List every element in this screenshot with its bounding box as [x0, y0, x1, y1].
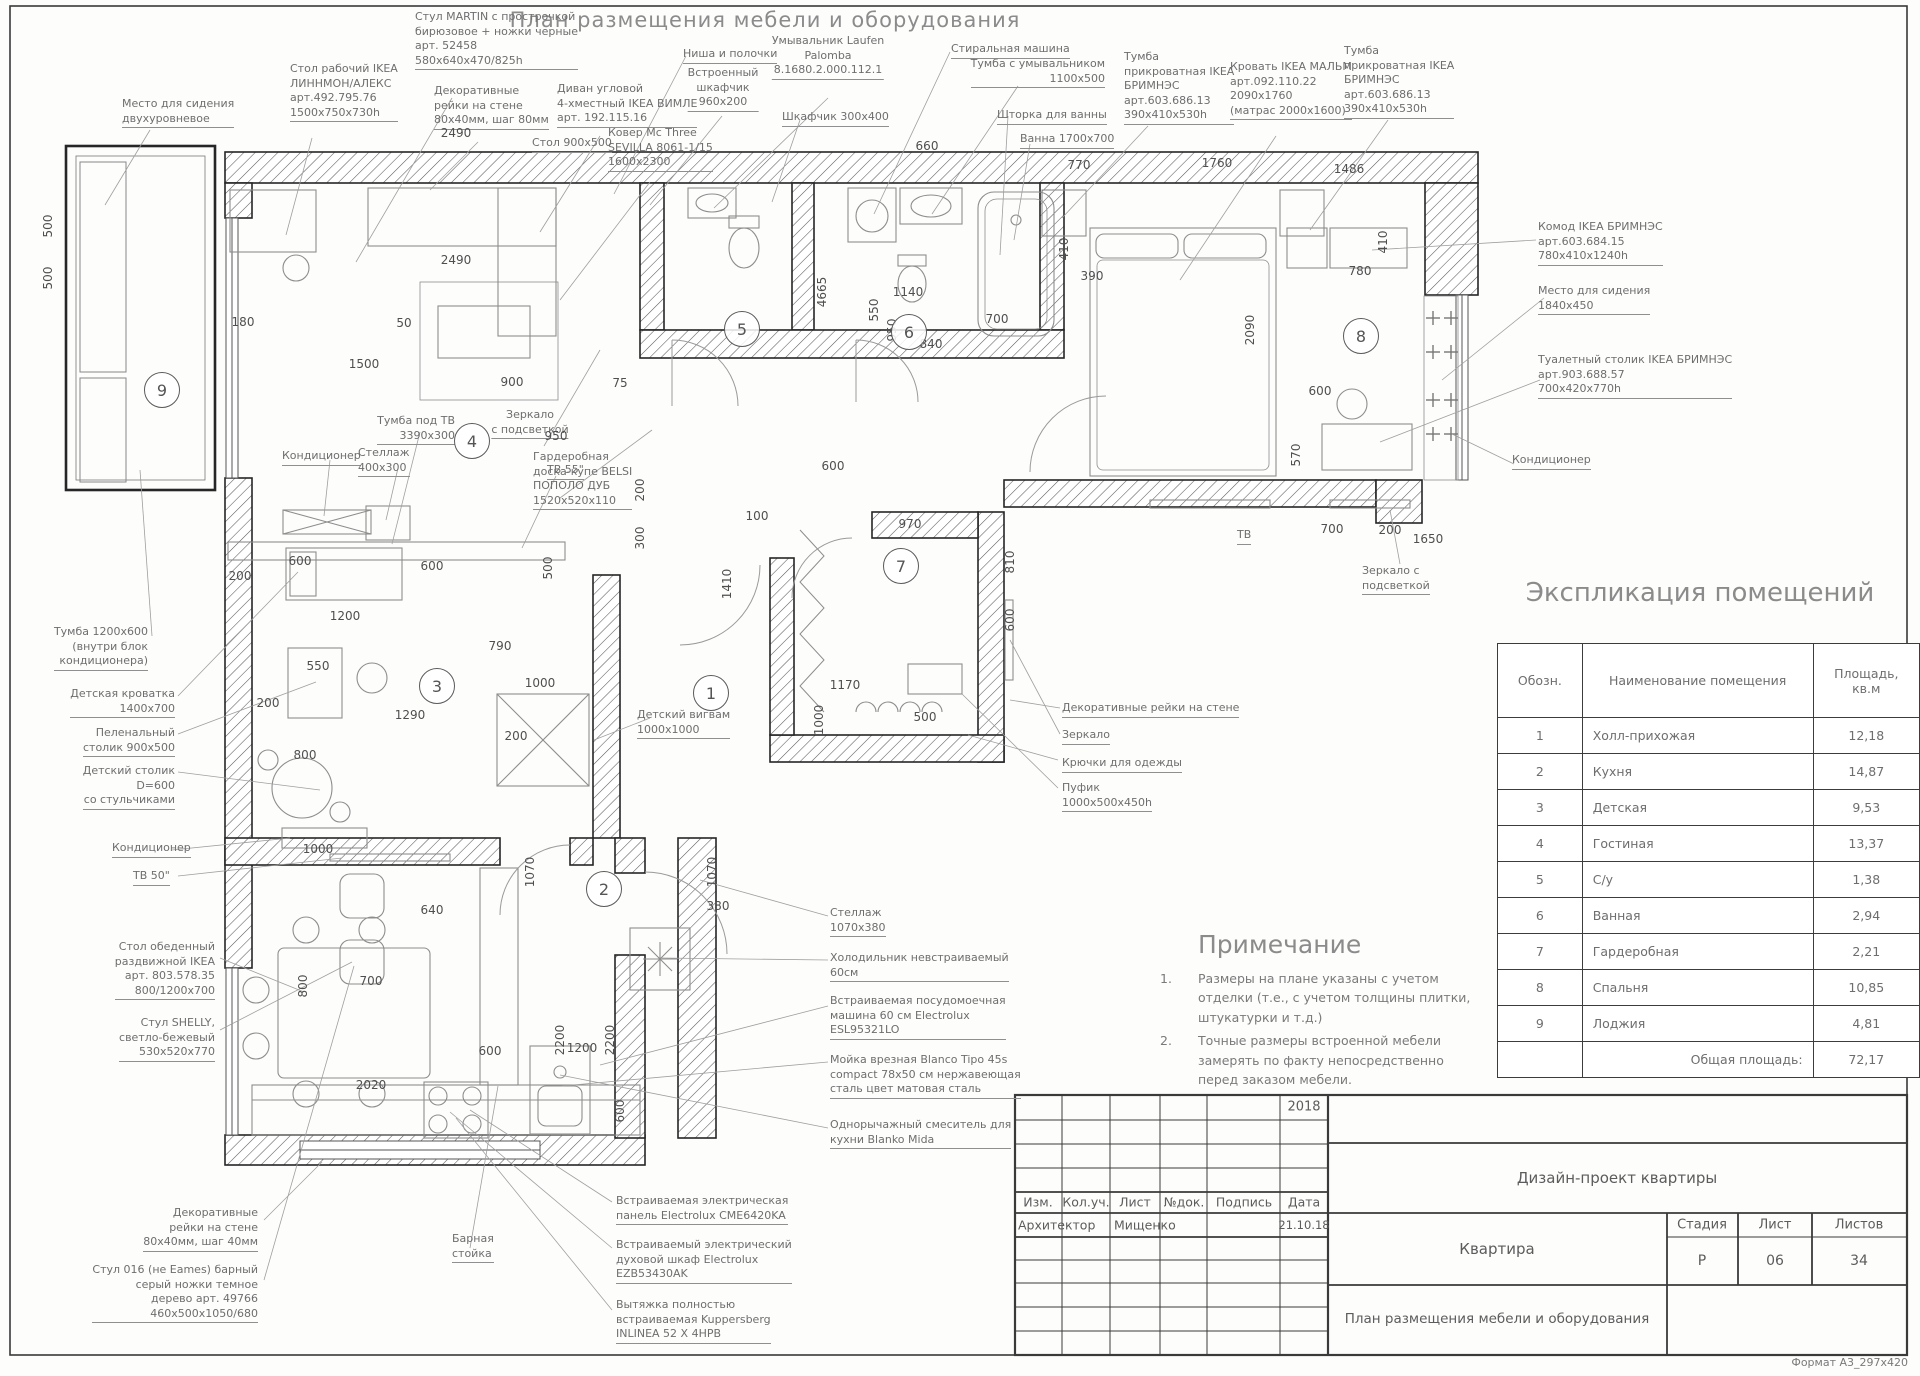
callout: Ванна 1700x700 [1020, 132, 1114, 149]
table-total-row: Общая площадь:72,17 [1498, 1042, 1920, 1078]
stamp-field-stage: Р [1698, 1253, 1706, 1269]
callout: Мойка врезная Blanco Tipo 45scompact 78x… [830, 1053, 1021, 1099]
callout: Детский столикD=600со стульчиками [83, 764, 175, 810]
callout: Стул MARTIN с прострочкойбирюзовое + нож… [415, 10, 578, 70]
dimension-label: 970 [899, 517, 922, 531]
dimension-label: 500 [541, 557, 555, 580]
dimension-label: 770 [1068, 158, 1091, 172]
dimension-label: 380 [707, 899, 730, 913]
dimension-label: 200 [1379, 523, 1402, 537]
callout: Декоративные рейки на стене [1062, 701, 1239, 718]
dimension-label: 180 [232, 315, 255, 329]
callout: Встраиваемый электрическийдуховой шкаф E… [616, 1238, 792, 1284]
room-number: 2 [586, 871, 622, 907]
dimension-label: 600 [421, 559, 444, 573]
dimension-label: 810 [1003, 551, 1017, 574]
dimension-label: 800 [296, 975, 310, 998]
callout: Гардеробнаядоска-купе BELSIПОПОЛО ДУБ152… [533, 450, 632, 510]
stamp-field-project: Дизайн-проект квартиры [1517, 1169, 1717, 1187]
dimension-label: 500 [41, 215, 55, 238]
dimension-label: 900 [501, 375, 524, 389]
dimension-label: 1070 [523, 857, 537, 888]
dimension-label: 1000 [303, 842, 334, 856]
callout: Пеленальныйстолик 900x500 [83, 726, 175, 757]
callout: Холодильник невстраиваемый60см [830, 951, 1009, 982]
dimension-label: 200 [229, 569, 252, 583]
dimension-label: 1290 [395, 708, 426, 722]
table-row: 7Гардеробная2,21 [1498, 934, 1920, 970]
dimension-label: 600 [1003, 609, 1017, 632]
callout: Туалетный столик IKEA БРИМНЭСарт.903.688… [1538, 353, 1732, 399]
stamp-field-sheet_label: Лист [1759, 1218, 1792, 1233]
dimension-label: 550 [307, 659, 330, 673]
dimension-label: 200 [633, 479, 647, 502]
callout: Место для сидениядвухуровневое [122, 97, 234, 128]
callout: Комод IKEA БРИМНЭСарт.603.684.15780x410x… [1538, 220, 1663, 266]
callout: Кондиционер [1512, 453, 1591, 470]
callout: Тумба 1200x600(внутри блоккондиционера) [54, 625, 148, 671]
dimension-label: 700 [360, 974, 383, 988]
stamp-field-headers-3: №док. [1164, 1195, 1205, 1210]
dimension-label: 410 [1376, 231, 1390, 254]
dimension-label: 660 [916, 139, 939, 153]
callout: Встроенныйшкафчик960x200 [688, 66, 759, 112]
table-header-row: Обозн.Наименование помещенияПлощадь, кв.… [1498, 644, 1920, 718]
callout: Кондиционер [112, 841, 191, 858]
stamp-field-role: Архитектор [1018, 1218, 1095, 1233]
room-number: 7 [883, 548, 919, 584]
room-number: 4 [454, 423, 490, 459]
stamp-field-object: Квартира [1459, 1240, 1534, 1258]
dimension-label: 300 [633, 527, 647, 550]
callout: Стеллаж1070x380 [830, 906, 886, 937]
room-number: 6 [891, 314, 927, 350]
stamp-field-sheet: 06 [1766, 1253, 1784, 1269]
stamp-field-headers-1: Кол.уч. [1062, 1195, 1109, 1210]
stamp-field-drawing_name: План размещения мебели и оборудования [1345, 1311, 1650, 1327]
room-number: 3 [419, 668, 455, 704]
callout: Ковер Mc ThreeSEVILLA 8061-1/151600x2300 [608, 126, 713, 172]
callout: Стул SHELLY,светло-бежевый530x520x770 [119, 1016, 215, 1062]
dimension-label: 2200 [553, 1025, 567, 1056]
dimension-label: 600 [613, 1100, 627, 1123]
dimension-label: 1760 [1202, 156, 1233, 170]
dimension-label: 2020 [356, 1078, 387, 1092]
dimension-label: 600 [1309, 384, 1332, 398]
text-overlay: План размещения мебели и оборудования Эк… [0, 0, 1920, 1376]
dimension-label: 4665 [815, 277, 829, 308]
callout: Зеркало сподсветкой [1362, 564, 1430, 595]
callout: Место для сидения1840x450 [1538, 284, 1650, 315]
dimension-label: 2490 [441, 126, 472, 140]
dimension-label: 800 [294, 748, 317, 762]
dimension-label: 1140 [893, 285, 924, 299]
notes-block: Примечание 1.Размеры на плане указаны с … [1160, 930, 1480, 1093]
callout: Диван угловой4-хместный IKEA ВИМЛЕарт. 1… [557, 82, 697, 128]
dimension-label: 700 [1321, 522, 1344, 536]
dimension-label: 950 [545, 429, 568, 443]
dimension-label: 75 [612, 376, 627, 390]
stamp-field-headers-0: Изм. [1023, 1195, 1052, 1210]
callout: Тумба под ТВ3390x300 [377, 414, 455, 445]
dimension-label: 1170 [830, 678, 861, 692]
dimension-label: 200 [257, 696, 280, 710]
drawing-sheet: План размещения мебели и оборудования Эк… [0, 0, 1920, 1376]
note-item: 2.Точные размеры встроенной мебели замер… [1160, 1031, 1480, 1089]
table-row: 8Спальня10,85 [1498, 970, 1920, 1006]
callout: Тумбаприкроватная IKEAБРИМНЭСарт.603.686… [1344, 44, 1454, 119]
dimension-label: 1200 [567, 1041, 598, 1055]
dimension-label: 410 [1057, 238, 1071, 261]
room-number: 1 [693, 675, 729, 711]
dimension-label: 2090 [1243, 315, 1257, 346]
dimension-label: 1000 [525, 676, 556, 690]
table-row: 3Детская9,53 [1498, 790, 1920, 826]
callout: ТВ 50" [133, 869, 170, 886]
callout: Стол обеденныйраздвижной IKEAарт. 803.57… [115, 940, 215, 1000]
dimension-label: 1000 [812, 705, 826, 736]
room-number: 9 [144, 372, 180, 408]
dimension-label: 500 [41, 267, 55, 290]
table-row: 9Лоджия4,81 [1498, 1006, 1920, 1042]
dimension-label: 640 [421, 903, 444, 917]
callout: Шкафчик 300x400 [782, 110, 889, 127]
dimension-label: 1500 [349, 357, 380, 371]
callout: Барнаястойка [452, 1232, 494, 1263]
table-row: 5С/у1,38 [1498, 862, 1920, 898]
callout: Шторка для ванны [997, 108, 1107, 125]
callout: Тумба с умывальником1100x500 [971, 57, 1105, 88]
dimension-label: 1200 [330, 609, 361, 623]
callout: Детский вигвам1000x1000 [637, 708, 730, 739]
callout: Встраиваемая электрическаяпанель Electro… [616, 1194, 788, 1225]
table-row: 6Ванная2,94 [1498, 898, 1920, 934]
callout: Стол рабочий IKEAЛИННМОН/АЛЕКСарт.492.79… [290, 62, 398, 122]
dimension-label: 550 [867, 299, 881, 322]
callout: ТВ 55" [547, 463, 584, 480]
dimension-label: 100 [746, 509, 769, 523]
callout: ТВ [1237, 528, 1251, 545]
dimension-label: 2490 [441, 253, 472, 267]
callout: Стеллаж400x300 [358, 446, 410, 477]
callout: Крючки для одежды [1062, 756, 1182, 773]
dimension-label: 1410 [720, 569, 734, 600]
stamp-field-sheets: 34 [1850, 1253, 1868, 1269]
callout: Стул 016 (не Eames) барныйсерый ножки те… [92, 1263, 258, 1323]
callout: Детская кроватка1400x700 [70, 687, 175, 718]
table-row: 2Кухня14,87 [1498, 754, 1920, 790]
dimension-label: 600 [289, 554, 312, 568]
dimension-label: 780 [1349, 264, 1372, 278]
explication-title: Экспликация помещений [1497, 578, 1903, 608]
callout: Вытяжка полностьювстраиваемая Kuppersber… [616, 1298, 771, 1344]
stamp-field-headers-4: Подпись [1216, 1195, 1272, 1210]
room-number: 5 [724, 311, 760, 347]
callout: Стол 900x500 [532, 136, 612, 153]
dimension-label: 570 [1289, 444, 1303, 467]
callout: Ниша и полочки [683, 47, 777, 64]
callout: Кровать IKEA МАЛЬМарт.092.110.222090x176… [1230, 60, 1352, 120]
dimension-label: 700 [986, 312, 1009, 326]
callout: Декоративныерейки на стене80x40мм, шаг 4… [143, 1206, 258, 1252]
stamp-field-sheets_label: Листов [1835, 1218, 1884, 1233]
table-row: 1Холл-прихожая12,18 [1498, 718, 1920, 754]
explication-table: Обозн.Наименование помещенияПлощадь, кв.… [1497, 643, 1920, 1078]
dimension-label: 600 [479, 1044, 502, 1058]
note-item: 1.Размеры на плане указаны с учетом отде… [1160, 969, 1480, 1027]
dimension-label: 790 [489, 639, 512, 653]
stamp-field-stage_label: Стадия [1677, 1218, 1727, 1233]
callout: Однорычажный смеситель длякухни Blanko M… [830, 1118, 1011, 1149]
stamp-field-headers-2: Лист [1119, 1195, 1151, 1210]
dimension-label: 50 [396, 316, 411, 330]
stamp-field-name: Мищенко [1114, 1218, 1176, 1233]
callout: Кондиционер [282, 449, 361, 466]
notes-title: Примечание [1198, 930, 1480, 959]
dimension-label: 600 [822, 459, 845, 473]
dimension-label: 1070 [705, 857, 719, 888]
dimension-label: 200 [505, 729, 528, 743]
callout: Зеркало [1062, 728, 1110, 745]
format-note: Формат А3_297x420 [1791, 1356, 1908, 1369]
dimension-label: 390 [1081, 269, 1104, 283]
callout: Встраиваемая посудомоечнаямашина 60 см E… [830, 994, 1006, 1040]
dimension-label: 500 [914, 710, 937, 724]
room-number: 8 [1343, 318, 1379, 354]
dimension-label: 2200 [603, 1025, 617, 1056]
page-title: План размещения мебели и оборудования [510, 8, 1021, 32]
dimension-label: 1650 [1413, 532, 1444, 546]
stamp-field-year: 2018 [1287, 1100, 1320, 1115]
callout: Тумбаприкроватная IKEAБРИМНЭСарт.603.686… [1124, 50, 1234, 125]
table-row: 4Гостиная13,37 [1498, 826, 1920, 862]
stamp-field-date: 21.10.18 [1278, 1218, 1329, 1232]
dimension-label: 1486 [1334, 162, 1365, 176]
stamp-field-headers-5: Дата [1288, 1195, 1320, 1210]
callout: Пуфик1000x500x450h [1062, 781, 1152, 812]
callout: Декоративныерейки на стене80x40мм, шаг 8… [434, 84, 549, 130]
callout: Умывальник LaufenPalomba8.1680.2.000.112… [772, 34, 884, 80]
